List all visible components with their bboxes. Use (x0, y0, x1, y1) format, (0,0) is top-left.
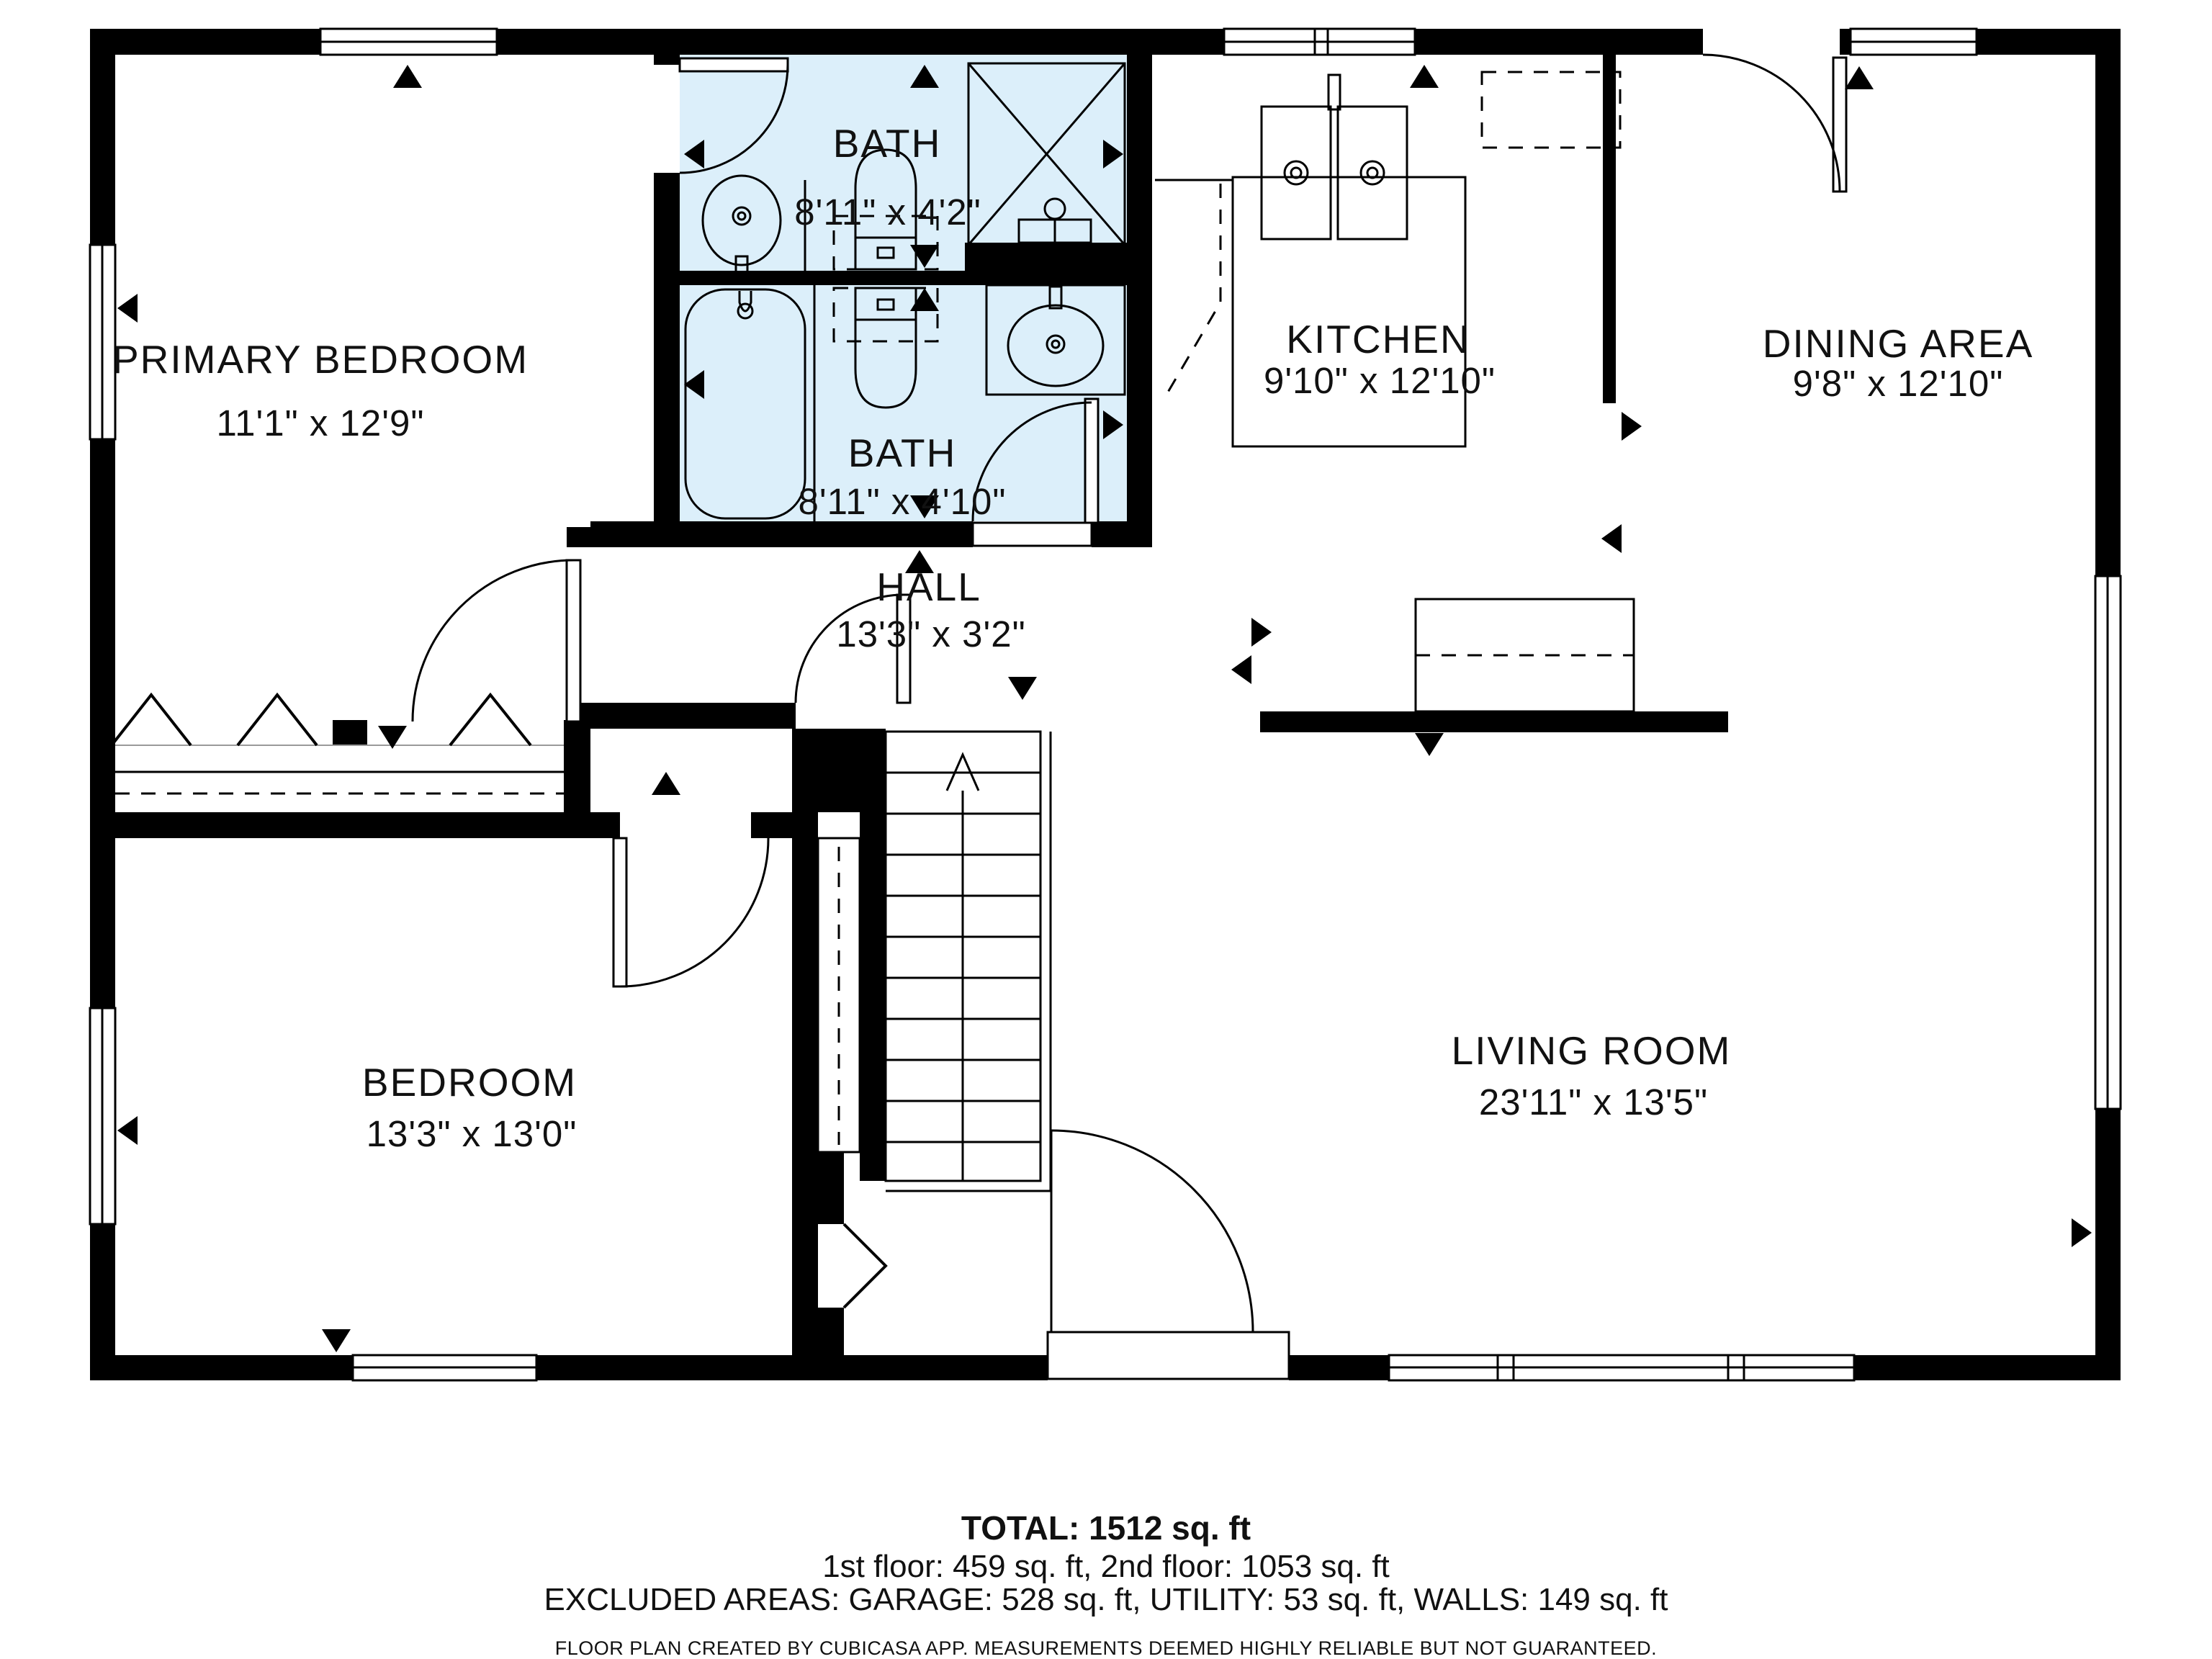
room-dim-bath-2: 8'11" x 4'10" (799, 481, 1007, 522)
room-dim-dining-area: 9'8" x 12'10" (1793, 363, 2004, 404)
window-bedroom-bottom (353, 1355, 536, 1380)
door-dining-exterior (1703, 55, 1846, 192)
room-label-primary-bedroom: PRIMARY BEDROOM (112, 337, 529, 382)
room-dim-bath-1: 8'11" x 4'2" (794, 192, 981, 233)
room-label-dining-area: DINING AREA (1763, 321, 2034, 366)
room-dim-bedroom: 13'3" x 13'0" (367, 1113, 577, 1154)
room-label-bath-1: BATH (833, 121, 942, 166)
kitchen-sink (1262, 75, 1407, 239)
door-entry-front (1048, 1130, 1289, 1379)
summary-excluded: EXCLUDED AREAS: GARAGE: 528 sq. ft, UTIL… (544, 1582, 1668, 1617)
stairs (886, 732, 1051, 1191)
window-kitchen-top (1224, 29, 1415, 55)
summary-disclaimer: FLOOR PLAN CREATED BY CUBICASA APP. MEAS… (555, 1637, 1657, 1659)
room-label-bath-2: BATH (848, 431, 957, 475)
floor-plan-page: PRIMARY BEDROOM 11'1" x 12'9" BATH 8'11"… (0, 0, 2212, 1659)
window-bedroom-left (90, 1008, 115, 1224)
room-dim-primary-bedroom: 11'1" x 12'9" (217, 403, 425, 444)
room-label-hall: HALL (876, 565, 981, 609)
dining-sideboard (1416, 599, 1634, 711)
room-label-bedroom: BEDROOM (362, 1060, 577, 1105)
summary-block: TOTAL: 1512 sq. ft 1st floor: 459 sq. ft… (544, 1509, 1668, 1659)
window-living-bottom (1389, 1355, 1854, 1380)
hall-closet (818, 838, 860, 1152)
kitchen-island (1233, 177, 1465, 446)
floor-plan-drawing: PRIMARY BEDROOM 11'1" x 12'9" BATH 8'11"… (0, 0, 2212, 1659)
room-dim-kitchen: 9'10" x 12'10" (1264, 360, 1496, 401)
room-label-living-room: LIVING ROOM (1452, 1028, 1732, 1073)
door-entry-closet-bifold (844, 1224, 886, 1308)
window-primary-bedroom-top (320, 29, 497, 55)
window-dining-top (1851, 29, 1977, 55)
summary-floors: 1st floor: 459 sq. ft, 2nd floor: 1053 s… (822, 1549, 1390, 1584)
summary-total: TOTAL: 1512 sq. ft (961, 1509, 1251, 1547)
window-living-right (2095, 576, 2121, 1109)
refrigerator (1482, 72, 1620, 148)
room-label-kitchen: KITCHEN (1286, 317, 1470, 361)
door-primary-bedroom (413, 560, 580, 721)
window-primary-bedroom-left (90, 245, 115, 439)
door-bedroom (613, 838, 768, 986)
room-dim-hall: 13'3" x 3'2" (836, 613, 1025, 655)
room-dim-living-room: 23'11" x 13'5" (1479, 1082, 1708, 1123)
